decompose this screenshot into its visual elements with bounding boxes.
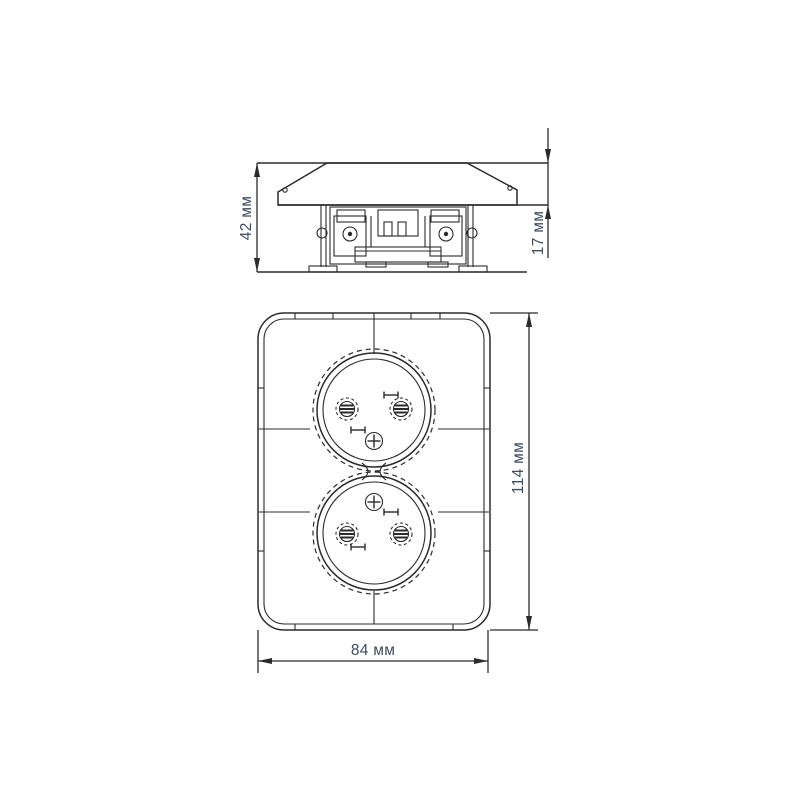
side-view: 42 мм 17 мм xyxy=(238,128,551,272)
reference-mark xyxy=(351,427,365,434)
hole-reference-marks xyxy=(351,392,398,551)
dimension-plate-height: 114 мм xyxy=(490,313,538,630)
dimension-plate-width: 84 мм xyxy=(258,630,488,673)
reference-mark xyxy=(351,544,365,551)
mechanism-tray xyxy=(355,247,441,262)
socket-dimension-drawing: 42 мм 17 мм xyxy=(0,0,800,800)
arrowhead-down xyxy=(254,258,260,272)
dimension-label-42mm: 42 мм xyxy=(238,196,255,240)
upper-pin-hole-right xyxy=(390,398,412,420)
upper-recess-dashed-outline xyxy=(313,349,435,471)
lower-pin-hole-right xyxy=(390,523,412,545)
arrowhead-left xyxy=(258,658,272,664)
support-foot-left xyxy=(309,266,337,272)
arrowhead-up xyxy=(526,313,532,327)
lower-recess-dashed-outline xyxy=(313,472,435,594)
lower-pin-hole-left xyxy=(336,523,358,545)
dimension-label-84mm: 84 мм xyxy=(351,642,395,659)
dimension-cover-projection: 17 мм xyxy=(530,128,551,258)
lower-fixing-screw xyxy=(366,494,383,511)
upper-pin-hole-left xyxy=(336,398,358,420)
faceplate-inner-outline xyxy=(264,319,484,624)
upper-fixing-screw xyxy=(366,433,383,450)
reference-mark xyxy=(384,509,398,516)
dimension-label-17mm: 17 мм xyxy=(530,211,547,255)
front-view: 114 мм 84 мм xyxy=(258,313,538,673)
technical-drawing-page: 42 мм 17 мм xyxy=(0,0,800,800)
edge-notches xyxy=(258,313,490,630)
socket-mechanism-profile xyxy=(309,205,487,272)
faceplate-outer-outline xyxy=(258,313,490,630)
arrowhead-down xyxy=(526,616,532,630)
arrowhead-right xyxy=(474,658,488,664)
cover-plate-profile xyxy=(278,163,517,205)
reference-mark xyxy=(384,392,398,399)
arrowhead-down xyxy=(545,149,551,163)
dimension-label-114mm: 114 мм xyxy=(510,442,527,494)
arrowhead-up xyxy=(254,163,260,177)
dimension-overall-depth: 42 мм xyxy=(238,163,260,272)
